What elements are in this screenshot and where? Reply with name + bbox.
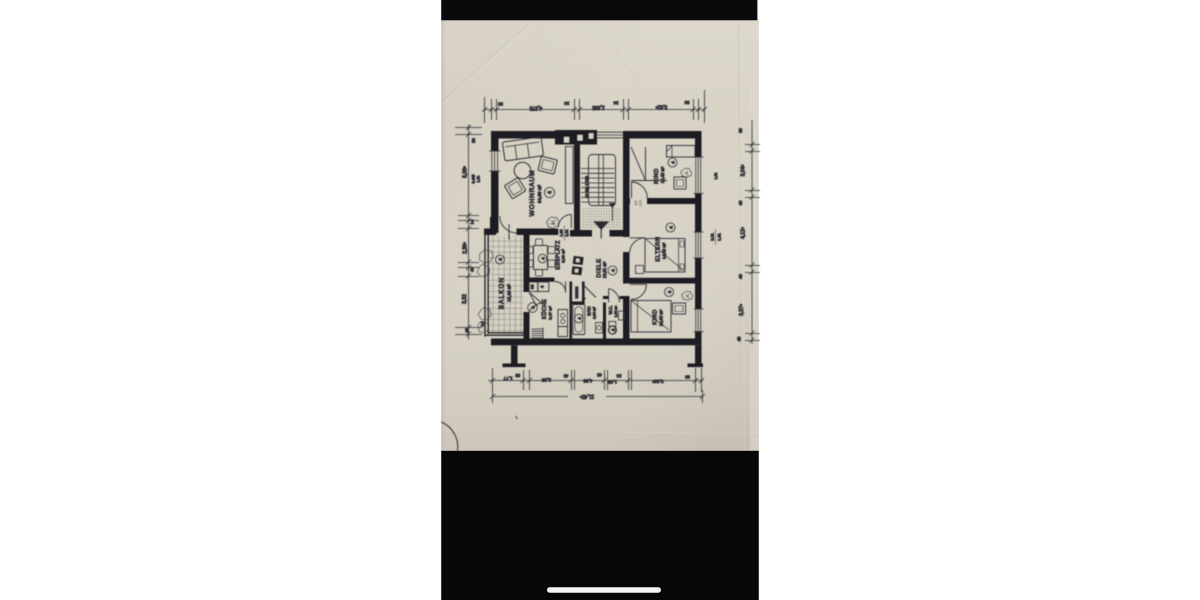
svg-text:9,47 m²: 9,47 m² (548, 306, 553, 320)
svg-text:2,01: 2,01 (639, 200, 643, 207)
svg-text:12,18 m²: 12,18 m² (507, 284, 512, 302)
svg-text:40: 40 (470, 267, 475, 272)
svg-text:W.C.: W.C. (608, 305, 613, 314)
svg-text:30: 30 (684, 100, 689, 105)
svg-text:5,06⁵: 5,06⁵ (463, 166, 469, 178)
svg-text:40: 40 (597, 373, 602, 378)
svg-text:16 Stg 17/28: 16 Stg 17/28 (584, 176, 589, 198)
svg-text:24: 24 (613, 100, 618, 105)
svg-text:30: 30 (738, 128, 743, 133)
svg-text:5,96 m²: 5,96 m² (561, 249, 566, 263)
svg-text:4,5: 4,5 (634, 201, 638, 206)
svg-text:24: 24 (564, 101, 569, 106)
svg-text:3,37⁵: 3,37⁵ (739, 304, 745, 316)
svg-text:4: 4 (548, 191, 554, 194)
svg-text:40: 40 (738, 200, 743, 205)
svg-text:45: 45 (737, 336, 742, 341)
svg-text:10,43 m²: 10,43 m² (660, 166, 665, 183)
svg-text:3,62⁵: 3,62⁵ (652, 378, 663, 384)
svg-text:4: 4 (541, 257, 546, 260)
svg-text:KS: KS (531, 284, 535, 289)
svg-text:2,36⁵: 2,36⁵ (463, 242, 469, 254)
svg-text:4,36: 4,36 (583, 377, 593, 383)
svg-text:4,96 m²: 4,96 m² (593, 306, 597, 319)
svg-text:24: 24 (616, 373, 621, 378)
svg-text:3,425: 3,425 (472, 175, 476, 184)
svg-text:4: 4 (667, 290, 673, 293)
svg-text:1,88: 1,88 (560, 229, 564, 236)
svg-text:1,05: 1,05 (608, 379, 617, 384)
svg-text:4: 4 (577, 317, 582, 320)
svg-text:3,62⁵: 3,62⁵ (656, 103, 668, 109)
svg-text:2,395: 2,395 (592, 104, 605, 110)
svg-text:30: 30 (498, 102, 503, 107)
svg-text:34,66 m²: 34,66 m² (537, 184, 542, 203)
svg-text:2,01: 2,01 (710, 232, 715, 241)
svg-text:4: 4 (671, 161, 677, 164)
svg-text:30: 30 (515, 373, 520, 378)
svg-text:4,12⁵: 4,12⁵ (741, 227, 747, 239)
svg-text:14,43 m²: 14,43 m² (662, 242, 667, 259)
svg-text:4: 4 (611, 269, 617, 272)
svg-text:BESEN: BESEN (575, 286, 579, 298)
svg-text:11,45⁵: 11,45⁵ (580, 393, 594, 399)
svg-text:40: 40 (738, 274, 743, 279)
svg-text:BAD: BAD (587, 306, 592, 316)
svg-text:10,91 m²: 10,91 m² (602, 261, 607, 278)
svg-text:12,63 m²: 12,63 m² (659, 309, 664, 326)
svg-text:30: 30 (471, 138, 476, 143)
svg-text:45: 45 (465, 328, 470, 333)
svg-text:BALKON: BALKON (499, 277, 506, 310)
svg-text:4: 4 (498, 258, 504, 261)
svg-text:1,51: 1,51 (717, 232, 722, 241)
svg-text:3,04⁵: 3,04⁵ (741, 165, 747, 177)
svg-text:30: 30 (685, 374, 690, 379)
svg-text:40: 40 (563, 373, 568, 378)
svg-text:4,375: 4,375 (530, 105, 543, 111)
svg-text:1,77: 1,77 (503, 375, 513, 381)
svg-text:1,51: 1,51 (714, 173, 718, 180)
svg-text:4: 4 (669, 226, 675, 229)
svg-text:1,93 m²: 1,93 m² (614, 305, 618, 317)
svg-text:3,32: 3,32 (462, 294, 468, 304)
svg-text:14: 14 (470, 219, 475, 224)
svg-text:2,25: 2,25 (542, 376, 552, 382)
svg-text:WOHNRAUM: WOHNRAUM (529, 170, 536, 217)
svg-text:1,51: 1,51 (477, 176, 481, 183)
svg-text:2,01: 2,01 (565, 229, 569, 236)
